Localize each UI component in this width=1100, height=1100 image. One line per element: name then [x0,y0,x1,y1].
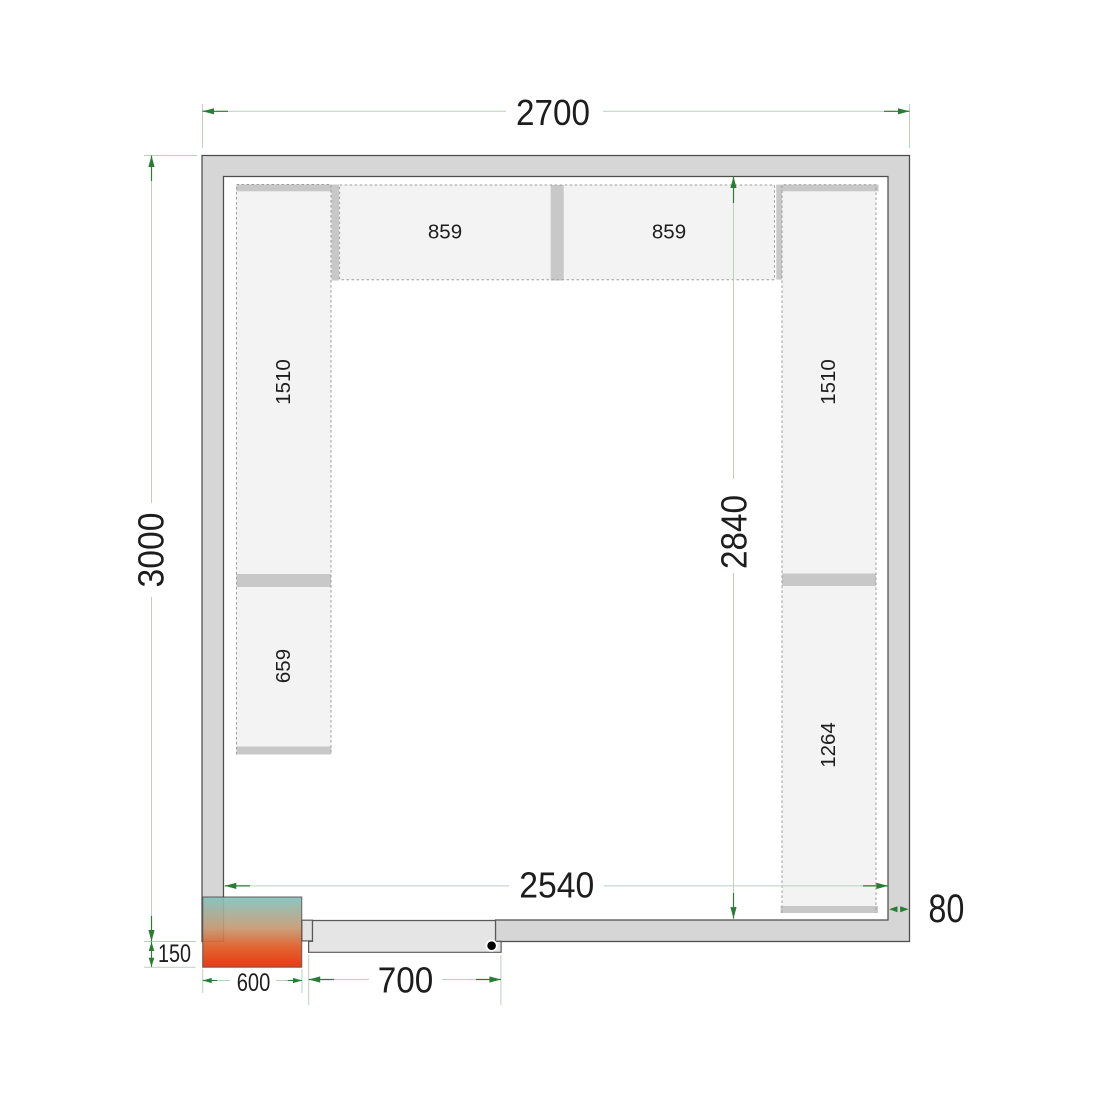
svg-text:1510: 1510 [272,359,295,405]
svg-text:659: 659 [272,649,295,683]
svg-text:859: 859 [652,221,686,244]
svg-text:3000: 3000 [131,513,172,588]
svg-text:1264: 1264 [817,722,840,768]
svg-text:859: 859 [428,221,462,244]
svg-text:80: 80 [928,887,964,931]
svg-text:1510: 1510 [817,359,840,405]
svg-text:150: 150 [158,940,191,968]
svg-text:600: 600 [237,969,271,997]
svg-text:700: 700 [378,960,434,1001]
svg-text:2840: 2840 [713,495,754,569]
svg-text:2700: 2700 [516,92,590,133]
svg-text:2540: 2540 [519,865,594,906]
